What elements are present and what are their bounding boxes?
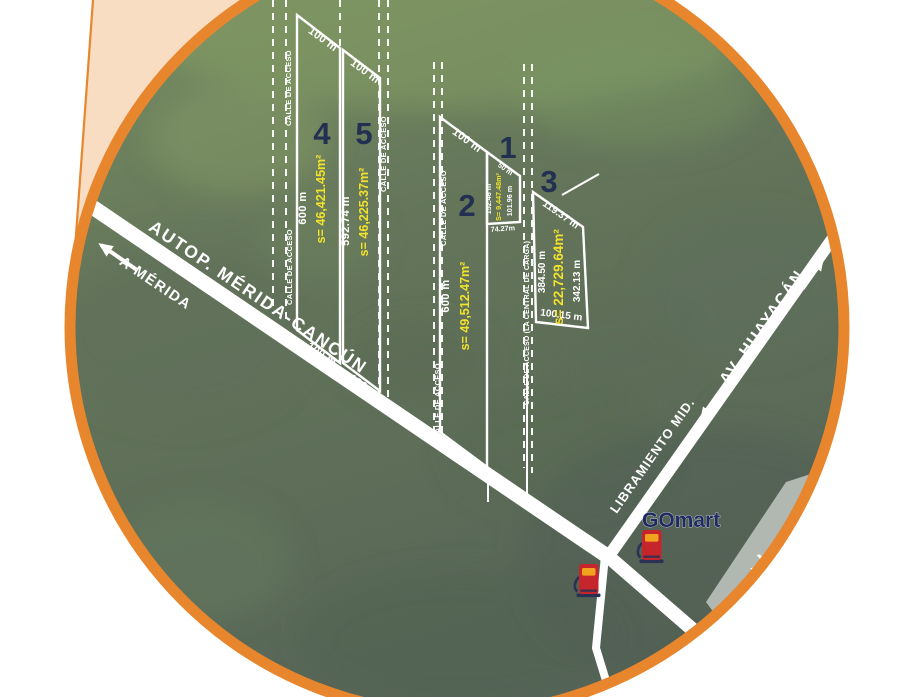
lot-2-area-label: s= 49,512.47m² (458, 262, 472, 351)
lot-2-left-edge-label: 600 m (440, 279, 452, 312)
lot-3-right-edge-label: 342.13 m (572, 260, 583, 302)
lot-1-area-label: S= 9,447.48m² (494, 173, 503, 221)
lot-2-number: 2 (458, 188, 475, 223)
map-figure: ✈ (0, 0, 920, 697)
lot-1-right-edge-label: 101.96 m (505, 186, 514, 216)
lot-5-area-label: s= 46,225.37m² (357, 168, 371, 257)
lot-4-area-label: s= 46,421.45m² (314, 155, 328, 244)
calle-de-acceso-label: CALLE DE ACCESO (285, 229, 294, 305)
calle-de-acceso-label: CALLE DE ACCESO (284, 50, 293, 126)
lot-1-left-edge-label: 152.46 m (484, 184, 493, 214)
calle-de-acceso-label: CALLE DE ACCESO (379, 116, 388, 192)
map-page: ✈ (0, 0, 920, 697)
lot-3-number: 3 (540, 164, 557, 199)
calle-de-acceso-label: CALLE DE ACCESO (439, 170, 448, 246)
calle-de-acceso-label: CALLE DE ACCESO (433, 363, 442, 439)
lot-3-left-edge-label: 384.50 m (537, 251, 548, 293)
gomart-label: GOmart (642, 509, 720, 532)
lot-5-number: 5 (355, 116, 372, 151)
lot-4-number: 4 (313, 116, 331, 151)
lot-5-left-edge-label: 592.74 m (340, 196, 352, 246)
lot-3-area-label: s= 22,729.64m² (551, 229, 566, 325)
lot-1-bottom-edge-label: 74.27m (490, 223, 515, 234)
lot-4-left-edge-label: 600 m (297, 191, 309, 224)
calle-central-de-carga-label: CALLE DE ACCESO (LA CENTRAL DE CARGA) (524, 241, 531, 405)
